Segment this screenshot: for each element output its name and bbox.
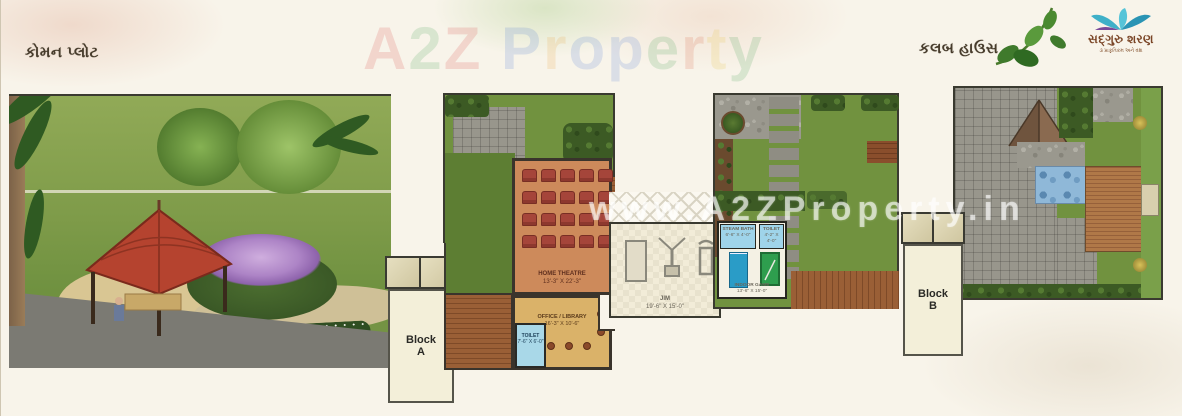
garden-3d-render <box>9 94 391 368</box>
block-a-label: Block <box>406 334 436 346</box>
shrubs <box>861 95 899 111</box>
cable-machine-icon <box>655 236 689 280</box>
block-b-label: Block <box>918 288 948 300</box>
lotus-flower-icon <box>1089 8 1153 32</box>
gym-room: JIM 19'-6" X 15'-0" <box>609 222 721 318</box>
flower-pot <box>1133 116 1147 130</box>
developer-logo: સદ્ગુરુ શરણ ૩ પ્રાકૃતિકમ અને વંશ <box>1069 8 1173 54</box>
gazebo <box>79 198 239 338</box>
indoor-game-room: STEAM BATH 6'-6" X 4'-0" TOILET 4'-2" X … <box>717 221 787 299</box>
hedge-strip <box>1059 88 1093 138</box>
tree <box>237 100 341 194</box>
leaf-vine-graphic <box>986 2 1074 74</box>
toilet-room: TOILET 7'-6" X 6'-0" <box>515 323 546 368</box>
shrubs <box>445 95 489 117</box>
chair <box>583 342 591 350</box>
block-b-footprint: Block B <box>903 244 963 356</box>
compound-wall <box>9 190 391 193</box>
steam-bath-label: STEAM BATH 6'-6" X 4'-0" <box>721 227 755 246</box>
snooker-table <box>760 252 780 286</box>
flower-pot <box>1133 258 1147 272</box>
palm-trunk <box>9 96 25 326</box>
games-toilet-label: TOILET 4'-2" X 4'-0" <box>760 227 783 246</box>
wood-deck <box>791 271 899 309</box>
brochure-page: કોમન પ્લોટ કલબ હાઉસ A2Z Property સદ્ગુરુ… <box>0 0 1182 416</box>
shrubs <box>563 123 613 163</box>
treadmill-icon <box>625 240 647 282</box>
gym-label: JIM 19'-6" X 15'-0" <box>611 296 719 311</box>
common-plot-label: કોમન પ્લોટ <box>25 44 99 61</box>
a2z-property-logo-watermark: A2Z Property <box>363 14 764 83</box>
dark-lawn <box>445 153 515 243</box>
tree-circle <box>721 111 745 135</box>
website-watermark: www.A2ZProperty.in <box>589 190 1169 229</box>
steps <box>867 141 897 163</box>
lift-cell <box>387 258 421 287</box>
rubble-stone-patch <box>1017 142 1085 168</box>
chair <box>547 342 555 350</box>
developer-name: સદ્ગુરુ શરણ <box>1069 32 1173 47</box>
shrubs <box>811 95 845 111</box>
indoor-game-label: INDOOR GAME 13'-6" X 15'-0" <box>719 283 785 295</box>
home-theatre-label: HOME THEATRE 13'-3" X 22'-3" <box>515 271 609 286</box>
chair <box>565 342 573 350</box>
dark-lawn <box>444 243 515 293</box>
developer-tagline: ૩ પ્રાકૃતિકમ અને વંશ <box>1069 48 1173 54</box>
hedge-row <box>955 284 1161 298</box>
toilet-label: TOILET 7'-6" X 6'-0" <box>517 333 544 346</box>
wood-deck <box>444 293 513 370</box>
tree <box>157 108 243 186</box>
